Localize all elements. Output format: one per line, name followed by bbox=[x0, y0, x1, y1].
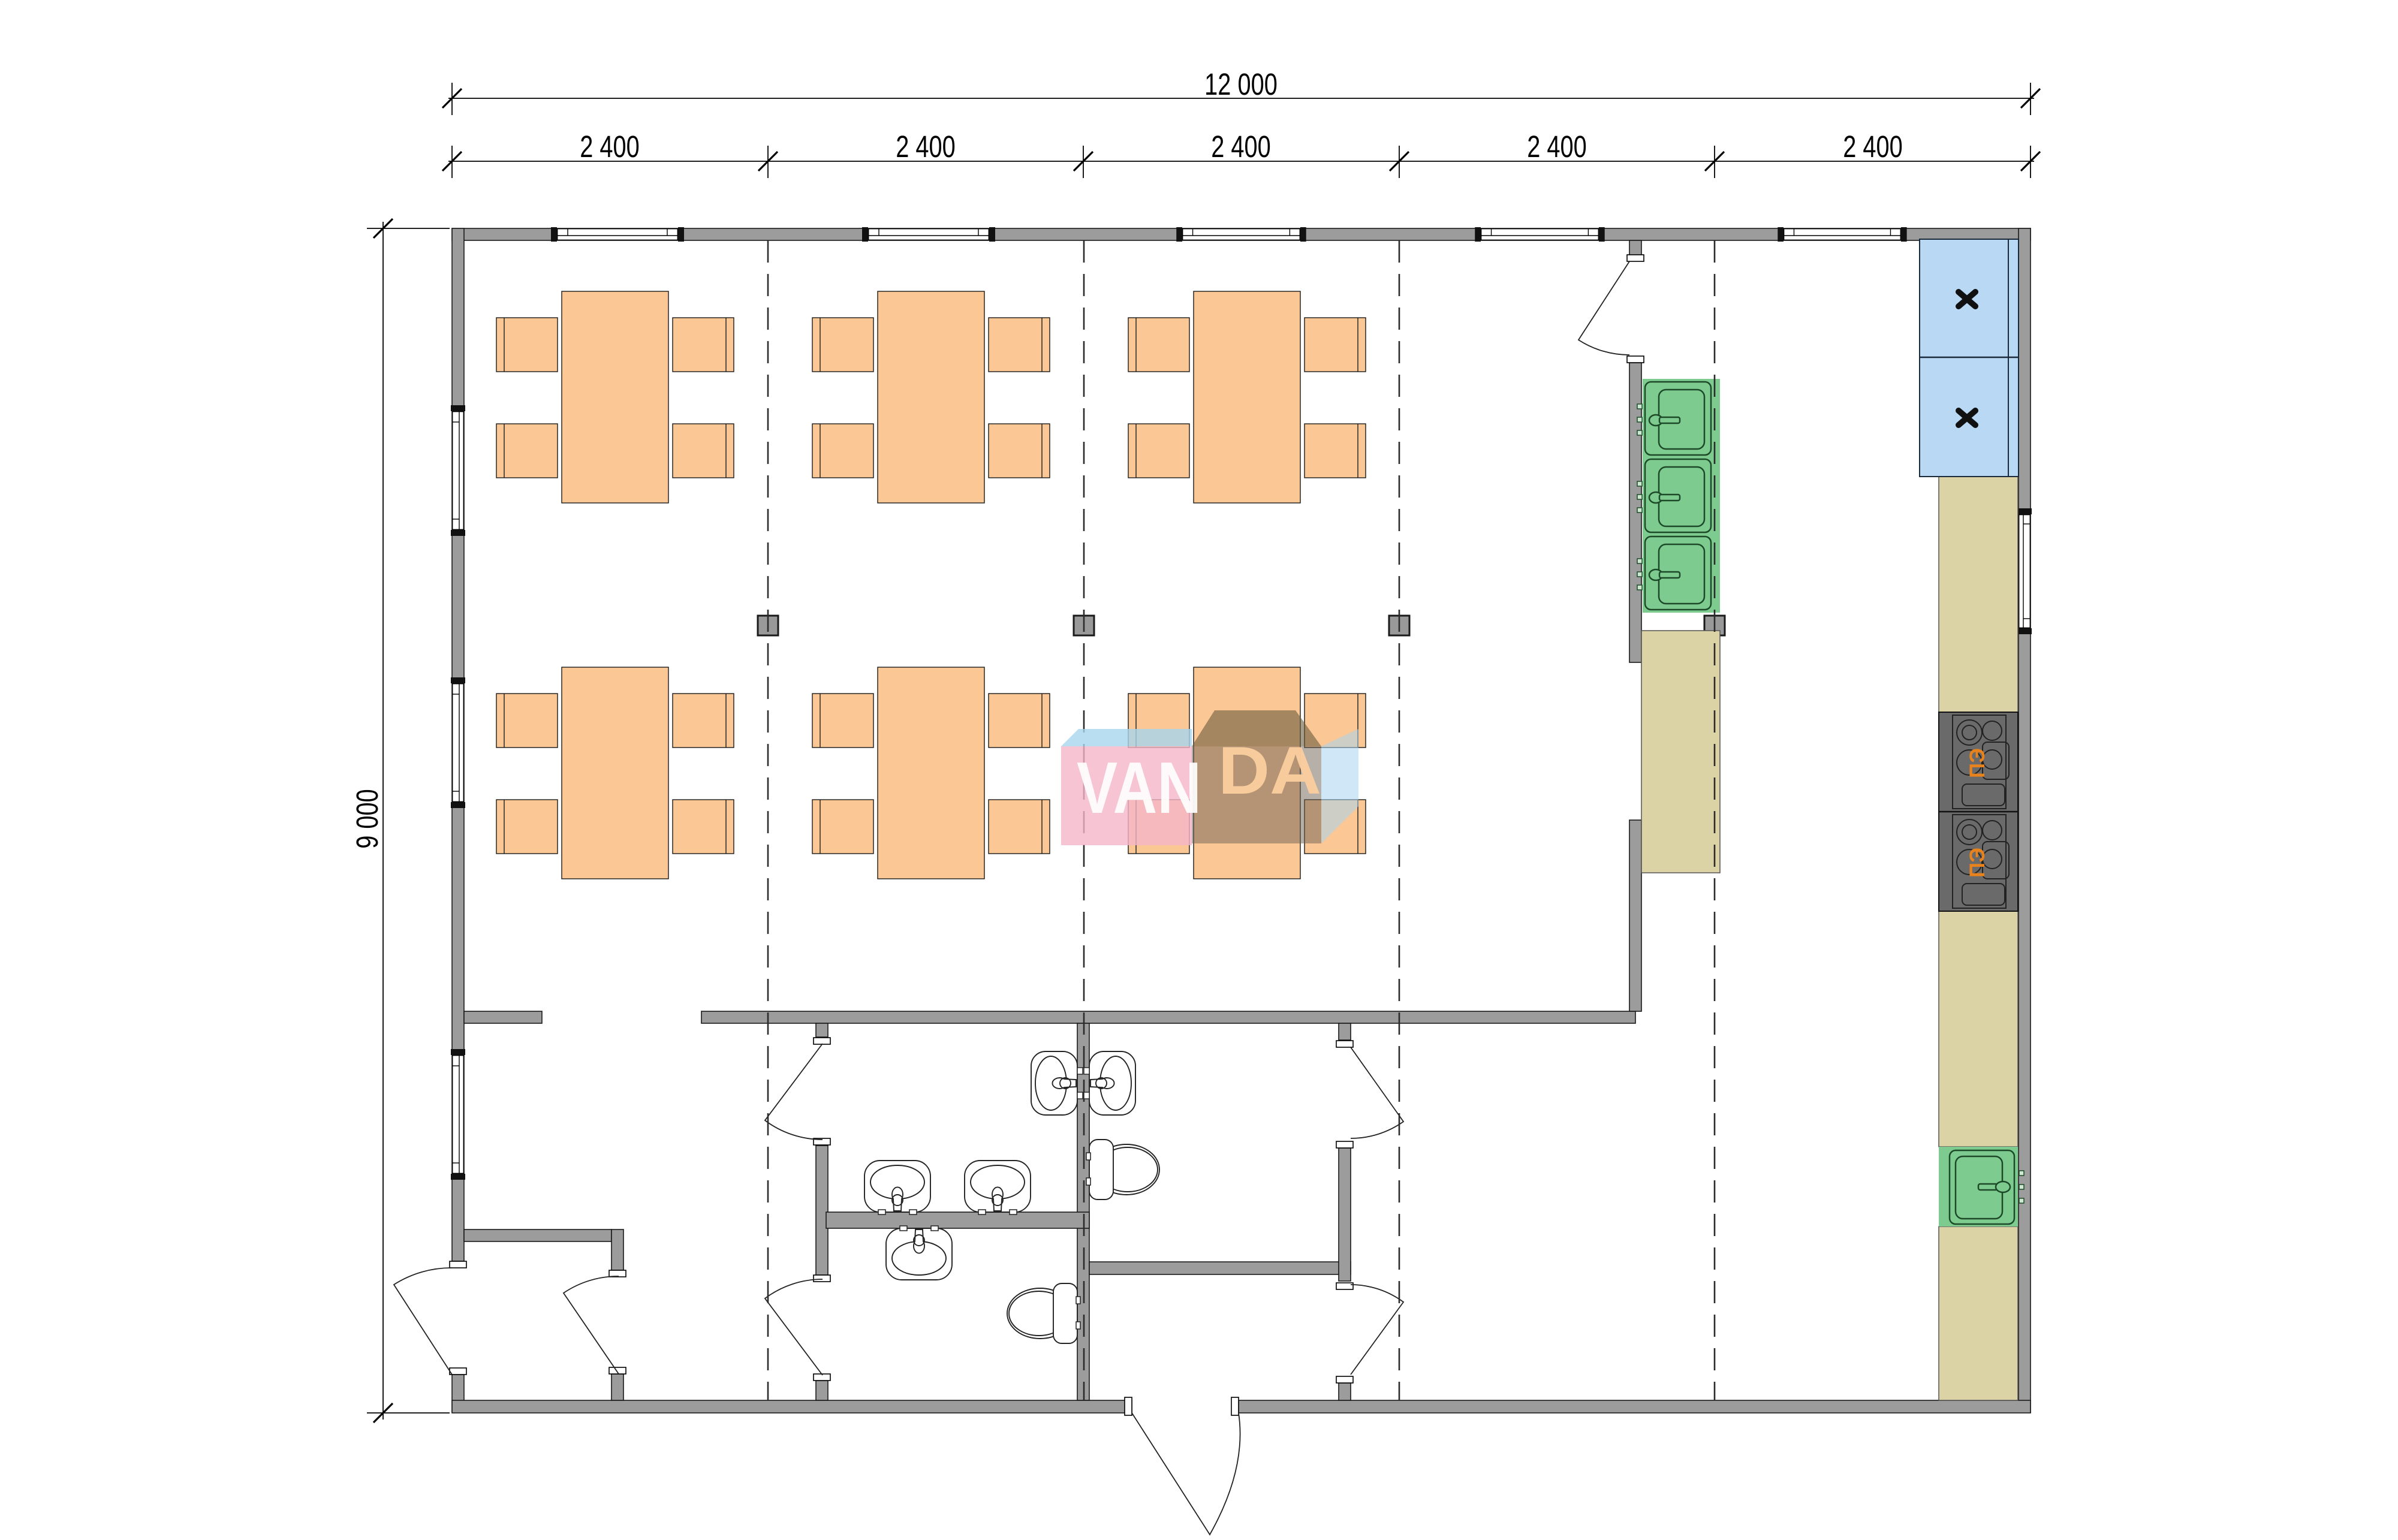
svg-text:2 400: 2 400 bbox=[896, 129, 956, 164]
svg-text:ПЭ: ПЭ bbox=[1966, 848, 1989, 878]
svg-text:ПЭ: ПЭ bbox=[1966, 748, 1989, 778]
svg-text:2 400: 2 400 bbox=[580, 129, 640, 164]
svg-text:2 400: 2 400 bbox=[1211, 129, 1271, 164]
svg-text:DA: DA bbox=[1218, 733, 1321, 808]
svg-text:2 400: 2 400 bbox=[1527, 129, 1587, 164]
svg-text:9 000: 9 000 bbox=[350, 789, 384, 849]
svg-text:2 400: 2 400 bbox=[1843, 129, 1903, 164]
svg-text:VAN: VAN bbox=[1077, 747, 1201, 828]
svg-text:12 000: 12 000 bbox=[1204, 67, 1278, 101]
